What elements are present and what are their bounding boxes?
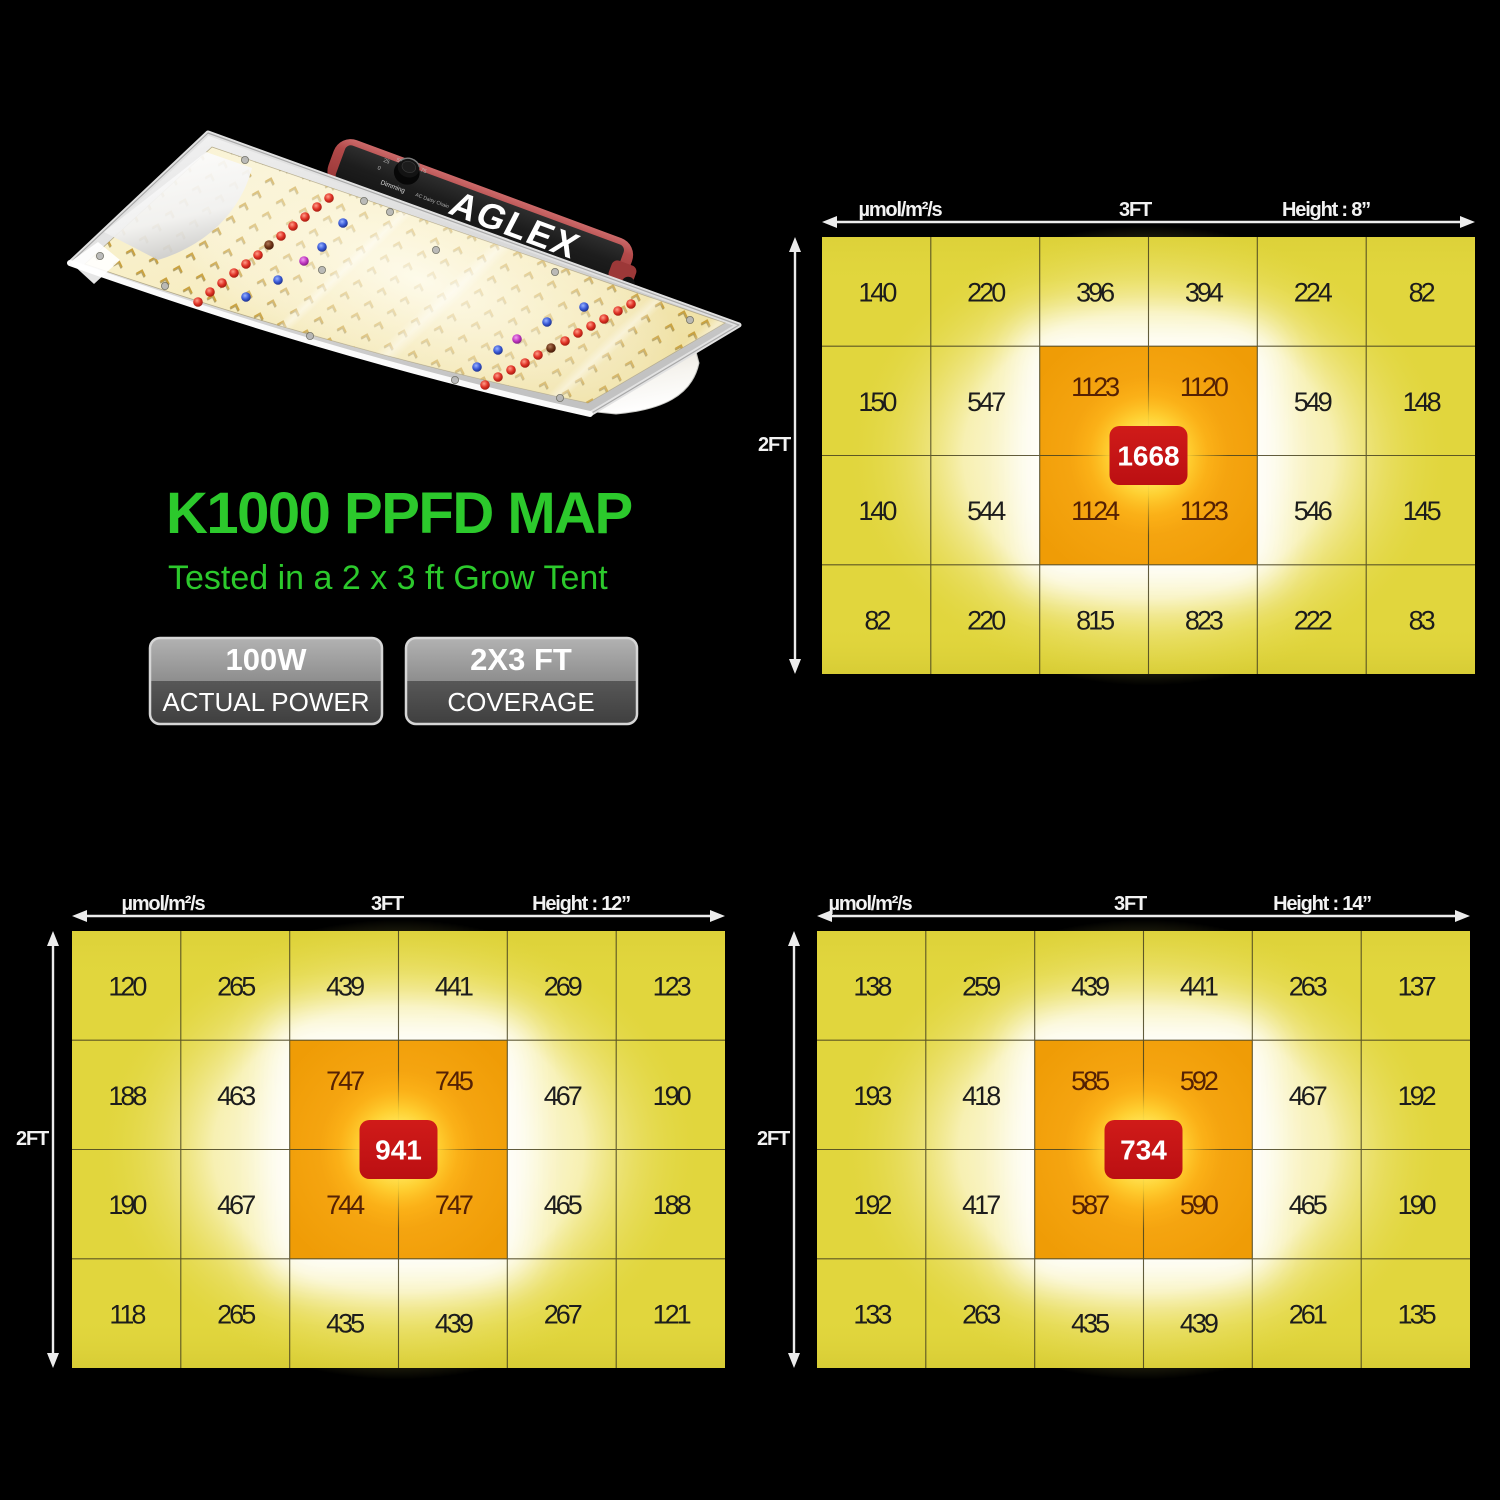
svg-text:439: 439 — [1071, 972, 1109, 1002]
svg-text:3FT: 3FT — [1119, 199, 1152, 221]
svg-text:1668: 1668 — [1117, 441, 1179, 472]
svg-text:82: 82 — [1409, 278, 1435, 308]
svg-text:1120: 1120 — [1180, 372, 1228, 402]
svg-text:467: 467 — [1289, 1081, 1327, 1111]
svg-text:3FT: 3FT — [1114, 893, 1147, 915]
svg-text:269: 269 — [544, 972, 582, 1002]
svg-text:118: 118 — [109, 1299, 145, 1329]
svg-text:µmol/m²/s: µmol/m²/s — [859, 199, 943, 221]
svg-text:188: 188 — [108, 1081, 146, 1111]
svg-text:435: 435 — [1071, 1308, 1109, 1338]
svg-text:263: 263 — [962, 1299, 1000, 1329]
svg-text:585: 585 — [1071, 1066, 1109, 1096]
svg-text:2X3 FT: 2X3 FT — [470, 642, 572, 677]
svg-text:590: 590 — [1180, 1190, 1218, 1220]
svg-text:COVERAGE: COVERAGE — [447, 687, 594, 717]
svg-text:192: 192 — [853, 1190, 891, 1220]
svg-text:747: 747 — [326, 1066, 364, 1096]
svg-text:587: 587 — [1071, 1190, 1109, 1220]
svg-text:224: 224 — [1294, 278, 1333, 308]
svg-text:120: 120 — [108, 972, 146, 1002]
svg-text:417: 417 — [962, 1190, 1000, 1220]
svg-text:100W: 100W — [226, 642, 308, 677]
svg-text:547: 547 — [967, 387, 1005, 417]
svg-text:2FT: 2FT — [16, 1128, 49, 1150]
svg-text:150: 150 — [858, 387, 896, 417]
svg-text:145: 145 — [1403, 496, 1441, 526]
svg-text:441: 441 — [1180, 972, 1218, 1002]
svg-text:467: 467 — [544, 1081, 582, 1111]
svg-text:193: 193 — [853, 1081, 891, 1111]
svg-text:1123: 1123 — [1180, 496, 1228, 526]
svg-text:123: 123 — [653, 972, 691, 1002]
svg-text:1124: 1124 — [1071, 496, 1120, 526]
svg-text:µmol/m²/s: µmol/m²/s — [122, 893, 206, 915]
svg-text:Height : 14”: Height : 14” — [1273, 893, 1371, 915]
svg-text:2FT: 2FT — [758, 434, 791, 456]
svg-text:190: 190 — [108, 1190, 146, 1220]
svg-text:220: 220 — [967, 605, 1005, 635]
svg-text:418: 418 — [962, 1081, 1000, 1111]
svg-text:439: 439 — [326, 972, 364, 1002]
svg-text:465: 465 — [1289, 1190, 1327, 1220]
svg-text:439: 439 — [1180, 1308, 1218, 1338]
svg-text:3FT: 3FT — [371, 893, 404, 915]
svg-text:148: 148 — [1403, 387, 1441, 417]
svg-text:261: 261 — [1289, 1299, 1327, 1329]
svg-text:140: 140 — [858, 278, 896, 308]
svg-text:Height : 8”: Height : 8” — [1282, 199, 1370, 221]
svg-text:µmol/m²/s: µmol/m²/s — [829, 893, 913, 915]
svg-text:549: 549 — [1294, 387, 1332, 417]
svg-text:823: 823 — [1185, 605, 1223, 635]
svg-text:744: 744 — [326, 1190, 365, 1220]
svg-text:83: 83 — [1409, 605, 1435, 635]
svg-text:263: 263 — [1289, 972, 1327, 1002]
svg-text:815: 815 — [1076, 605, 1114, 635]
svg-text:465: 465 — [544, 1190, 582, 1220]
svg-text:190: 190 — [1398, 1190, 1436, 1220]
svg-text:K1000 PPFD MAP: K1000 PPFD MAP — [166, 481, 632, 546]
svg-text:138: 138 — [853, 972, 891, 1002]
svg-text:82: 82 — [864, 605, 890, 635]
svg-text:137: 137 — [1398, 972, 1436, 1002]
svg-text:467: 467 — [217, 1190, 255, 1220]
svg-text:2FT: 2FT — [757, 1128, 790, 1150]
svg-text:747: 747 — [435, 1190, 473, 1220]
svg-text:135: 135 — [1398, 1299, 1436, 1329]
svg-text:592: 592 — [1180, 1066, 1218, 1096]
svg-text:190: 190 — [653, 1081, 691, 1111]
svg-text:ACTUAL POWER: ACTUAL POWER — [162, 687, 369, 717]
svg-text:439: 439 — [435, 1308, 473, 1338]
svg-text:941: 941 — [375, 1135, 422, 1166]
svg-text:265: 265 — [217, 1299, 255, 1329]
svg-text:435: 435 — [326, 1308, 364, 1338]
svg-text:140: 140 — [858, 496, 896, 526]
svg-text:192: 192 — [1398, 1081, 1436, 1111]
svg-text:267: 267 — [544, 1299, 582, 1329]
svg-text:Tested in a 2 x 3 ft Grow Tent: Tested in a 2 x 3 ft Grow Tent — [168, 559, 608, 597]
svg-text:121: 121 — [653, 1299, 691, 1329]
svg-text:Height : 12”: Height : 12” — [532, 893, 630, 915]
svg-text:734: 734 — [1120, 1135, 1167, 1166]
svg-text:259: 259 — [962, 972, 1000, 1002]
svg-text:441: 441 — [435, 972, 473, 1002]
svg-text:463: 463 — [217, 1081, 255, 1111]
svg-text:544: 544 — [967, 496, 1006, 526]
svg-text:188: 188 — [653, 1190, 691, 1220]
svg-text:222: 222 — [1294, 605, 1332, 635]
svg-text:1123: 1123 — [1071, 372, 1119, 402]
svg-text:133: 133 — [853, 1299, 891, 1329]
svg-text:745: 745 — [435, 1066, 473, 1096]
svg-text:396: 396 — [1076, 278, 1114, 308]
svg-text:265: 265 — [217, 972, 255, 1002]
svg-text:220: 220 — [967, 278, 1005, 308]
svg-text:394: 394 — [1185, 278, 1224, 308]
svg-text:546: 546 — [1294, 496, 1332, 526]
